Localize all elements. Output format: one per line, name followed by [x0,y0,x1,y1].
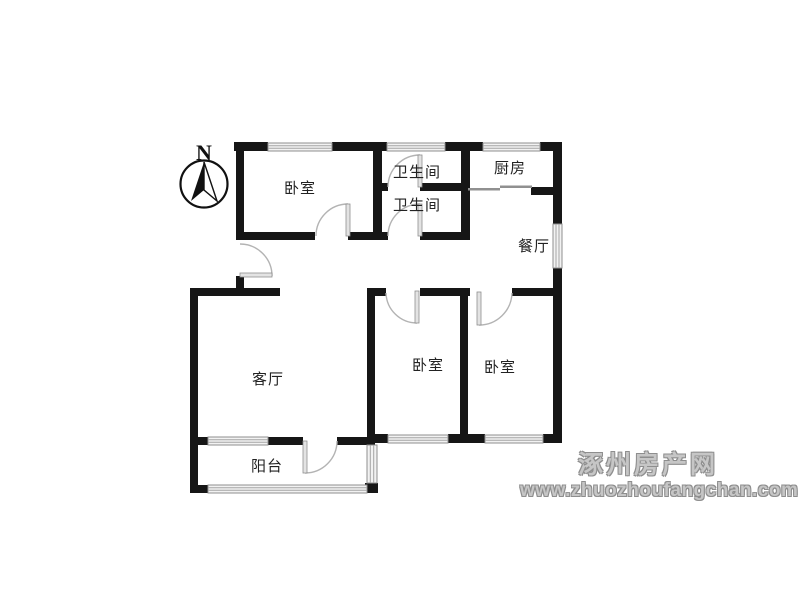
wall-segment [190,288,280,296]
door-leaf [477,292,481,325]
door-leaf [346,204,350,236]
window-kitchen [483,143,540,151]
bedroom-right-door [477,292,512,325]
door-swing-arc [240,244,272,276]
window-bathroom-top [387,143,445,151]
wall-segment [460,294,468,436]
wall-segment [367,288,375,445]
wall-segment [420,232,470,240]
wall-segment [190,288,198,493]
sliding-panel [468,188,500,191]
window-dining [553,224,562,268]
wall-segment [461,142,470,240]
wall-segment [348,232,388,240]
room-label-dining: 餐厅 [518,238,550,255]
wall-segment [382,183,388,191]
window-balcony-side [367,445,377,483]
bedroom-mid-door [386,291,419,323]
wall-segment [337,437,375,445]
sliding-panel [500,186,532,189]
entry-door [240,244,272,277]
room-label-bathroom-upper: 卫生间 [393,164,441,181]
door-leaf [415,291,419,323]
room-label-bedroom-mid: 卧室 [412,357,444,374]
wall-segment [375,434,388,443]
room-label-bedroom-top: 卧室 [284,180,316,197]
window-bedroom-right [485,435,543,443]
wall-segment [190,485,208,493]
room-label-kitchen: 厨房 [494,160,526,177]
kitchen-sliding-door [468,186,532,191]
wall-segment [373,142,382,240]
watermark-site-url: www.zhuozhoufangchan.com [520,481,776,502]
window-living [208,437,268,445]
door-leaf [240,273,272,277]
wall-segment [190,437,208,445]
bedroom-top-door [316,204,350,236]
compass-needle-left [191,162,204,201]
wall-segment [236,232,315,240]
watermark-site-name: 涿州房产网 [520,452,776,480]
door-swing-arc [479,293,512,325]
floorplan-svg: N 卧室 卫生间 卫生间 厨房 餐厅 客厅 卧室 卧室 阳台 [0,0,800,600]
room-label-bathroom-lower: 卫生间 [393,197,441,214]
wall-segment [268,437,303,445]
door-swing-arc [386,293,417,323]
window-balcony-front [208,485,367,493]
wall-segment [448,434,485,443]
watermark: 涿州房产网 www.zhuozhoufangchan.com [520,452,776,501]
wall-segment [236,142,244,240]
door-leaf [303,441,307,473]
compass-icon: N [181,140,228,208]
wall-segment [553,142,562,224]
doors [240,155,532,473]
wall-segment [420,183,461,191]
window-bedroom-mid [388,435,448,443]
room-label-balcony: 阳台 [251,458,283,475]
door-swing-arc [316,204,348,236]
wall-segment [512,288,562,296]
room-label-living: 客厅 [252,371,284,388]
room-label-bedroom-right: 卧室 [484,359,516,376]
window-bedroom-top [268,143,332,151]
floorplan-image: N 卧室 卫生间 卫生间 厨房 餐厅 客厅 卧室 卧室 阳台 涿州房产网 www… [0,0,800,600]
compass-needle-right [204,162,217,201]
balcony-door [303,441,337,473]
wall-segment [543,434,562,443]
door-swing-arc [305,441,337,473]
wall-segment [531,187,553,195]
